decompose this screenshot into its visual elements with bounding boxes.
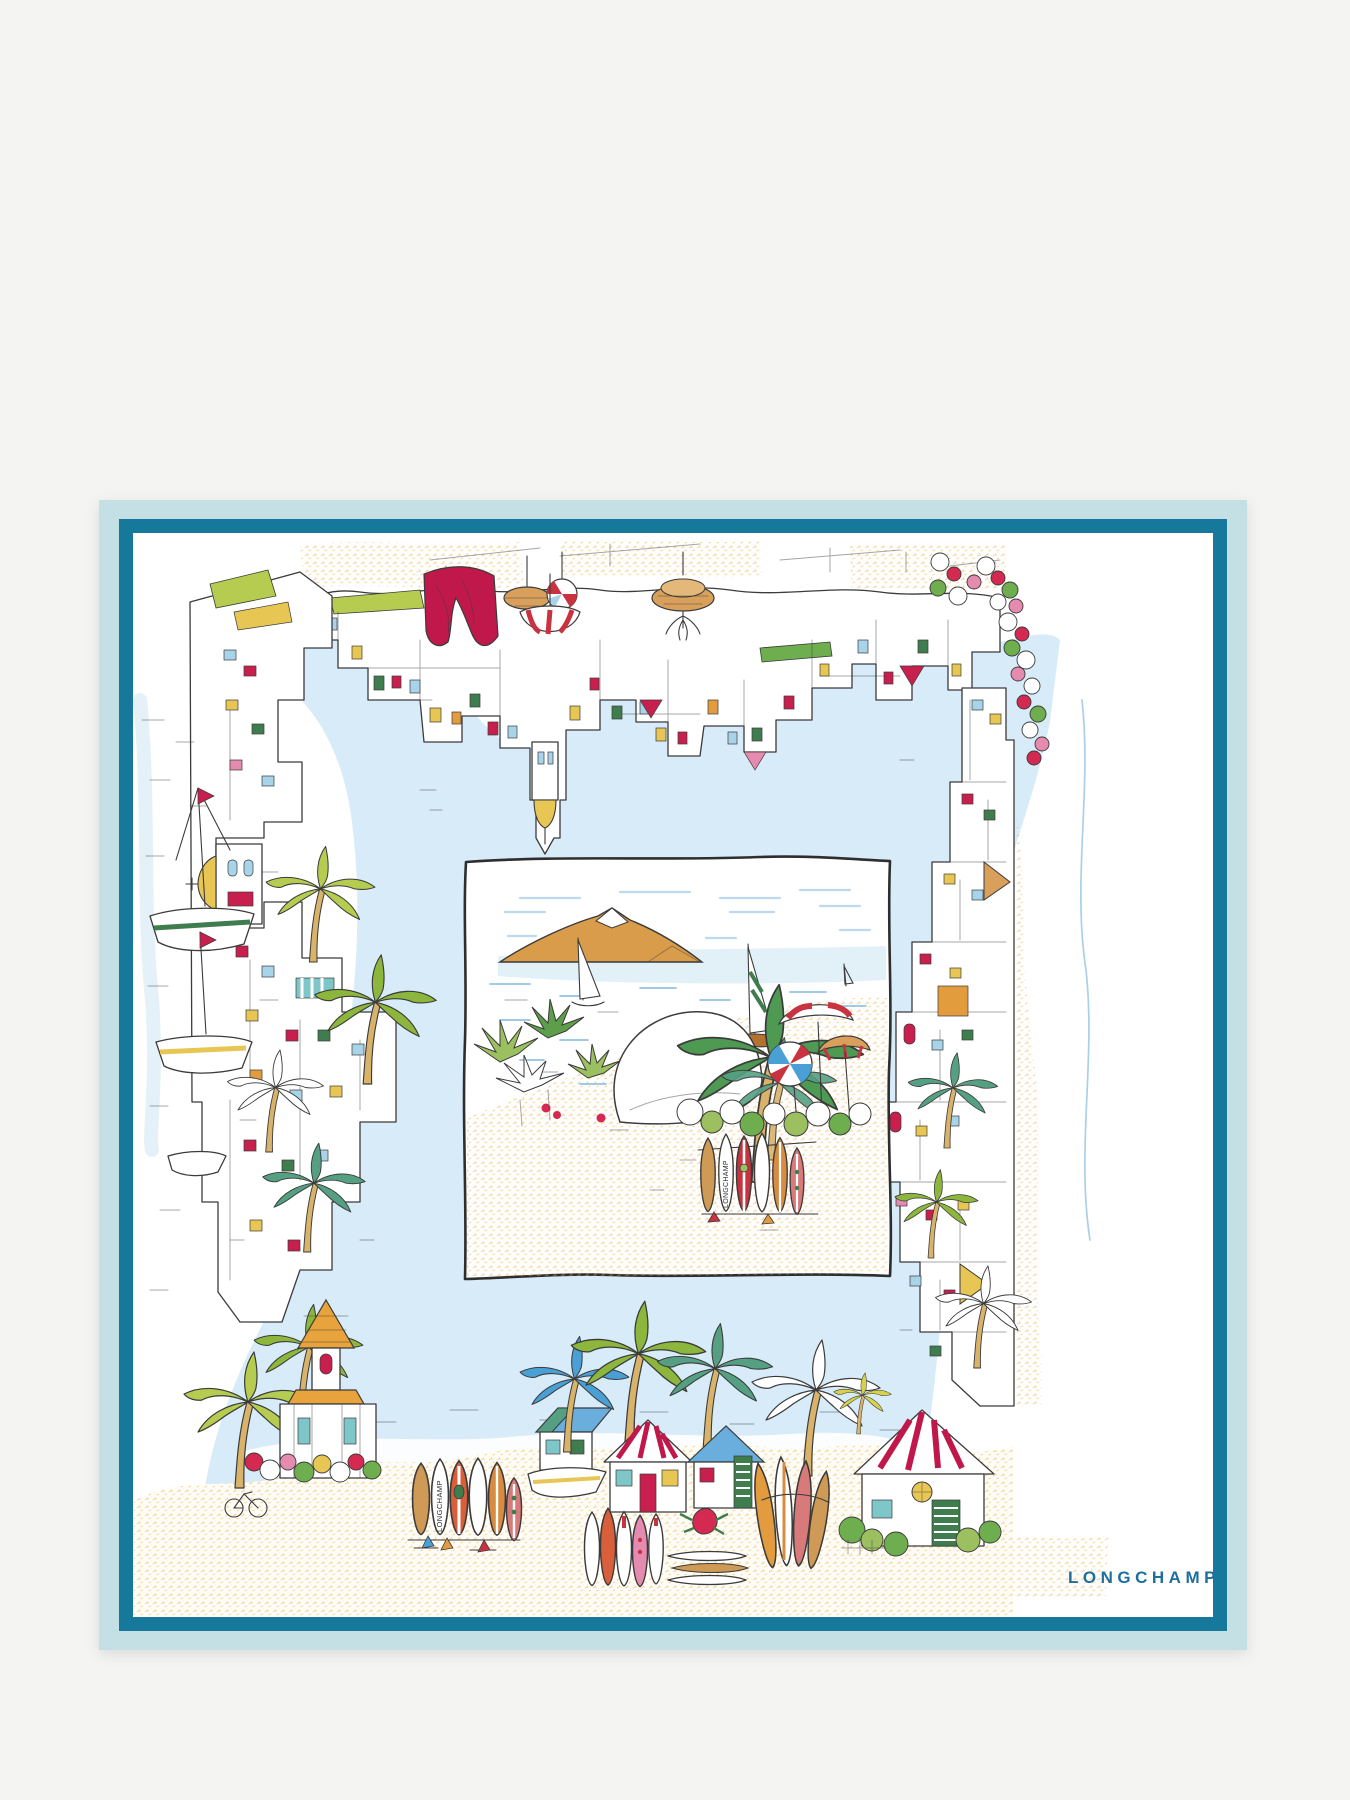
surfboard: [413, 1463, 430, 1534]
surfboard-brand-text: LONGCHAMP: [435, 1480, 444, 1532]
surfboard: [469, 1458, 487, 1535]
central-vignette: LONGCHAMP: [464, 857, 891, 1279]
surfboard-stack-lying: [668, 1552, 748, 1585]
surfboard: [585, 1512, 600, 1586]
product-photo: LONGCHAMP: [0, 0, 1350, 1800]
dinghy: [168, 1152, 226, 1176]
surfboard-brand-text: LONGCHAMP: [723, 1160, 730, 1208]
brand-wordmark: LONGCHAMP: [1068, 1568, 1228, 1588]
surfboard: [701, 1138, 715, 1212]
scarf-illustration: LONGCHAMP: [0, 0, 1350, 1800]
surfboard: [755, 1133, 770, 1211]
surfboard: [601, 1508, 616, 1585]
